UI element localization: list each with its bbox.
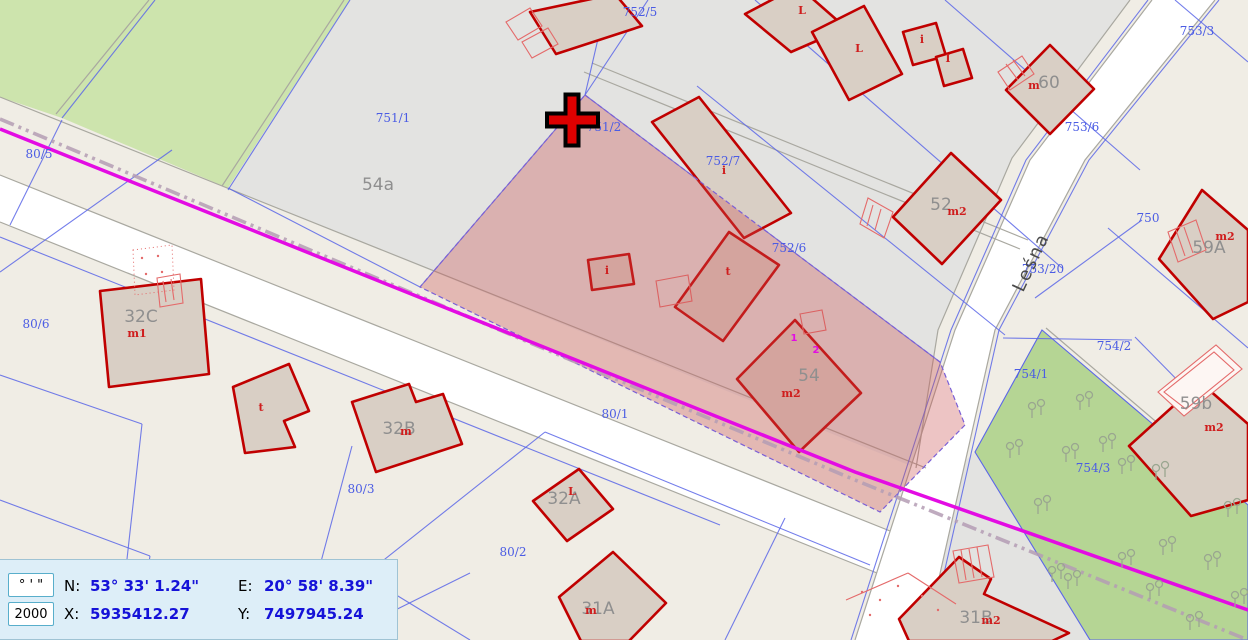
address-label: 59b bbox=[1180, 394, 1212, 414]
map-canvas[interactable]: 752/5751/1751/2752/6752/7753/3753/675075… bbox=[0, 0, 1248, 640]
address-label: 32A bbox=[547, 489, 581, 509]
utility-mark: 2 bbox=[813, 345, 820, 356]
building-type-mark: L bbox=[798, 4, 806, 17]
building-type-mark: i bbox=[920, 33, 924, 46]
building-type-mark: m2 bbox=[781, 387, 800, 400]
parcel-number-label: 80/1 bbox=[602, 407, 629, 421]
utility-mark: 1 bbox=[791, 333, 798, 344]
building-type-mark: m1 bbox=[127, 327, 146, 340]
building-type-mark: i bbox=[605, 264, 609, 277]
lon-label: E: bbox=[238, 577, 264, 595]
building-type-mark: L bbox=[855, 42, 863, 55]
building bbox=[100, 279, 209, 387]
x-label: X: bbox=[64, 605, 90, 623]
address-label: 32C bbox=[124, 307, 158, 327]
parcel-number-label: 753/6 bbox=[1065, 120, 1100, 134]
address-label: 60 bbox=[1038, 73, 1060, 93]
parcel-number-label: 750 bbox=[1137, 211, 1160, 225]
lat-label: N: bbox=[64, 577, 90, 595]
building-type-mark: m bbox=[1028, 79, 1040, 92]
address-label: 54 bbox=[798, 366, 820, 386]
scale-input[interactable]: 2000 bbox=[8, 602, 54, 626]
parcel-number-label: 80/5 bbox=[26, 147, 53, 161]
building-type-mark: m bbox=[400, 425, 412, 438]
parcel-number-label: 752/6 bbox=[772, 241, 807, 255]
building-type-mark: L bbox=[568, 485, 576, 498]
building-type-mark: m bbox=[585, 604, 597, 617]
parcel-number-label: 80/2 bbox=[500, 545, 527, 559]
lon-value: 20° 58' 8.39" bbox=[264, 577, 404, 595]
parcel-number-label: 754/1 bbox=[1014, 367, 1049, 381]
coordinate-panel: ° ' " 2000 N: 53° 33' 1.24" E: 20° 58' 8… bbox=[0, 559, 398, 640]
building-type-mark: i bbox=[722, 164, 726, 177]
y-label: Y: bbox=[238, 605, 264, 623]
parcel-number-label: 751/1 bbox=[376, 111, 411, 125]
parcel-number-label: 752/5 bbox=[623, 5, 658, 19]
y-value: 7497945.24 bbox=[264, 605, 404, 623]
x-value: 5935412.27 bbox=[90, 605, 238, 623]
parcel-number-label: 754/3 bbox=[1076, 461, 1111, 475]
map-viewer: 752/5751/1751/2752/6752/7753/3753/675075… bbox=[0, 0, 1248, 640]
lat-value: 53° 33' 1.24" bbox=[90, 577, 238, 595]
parcel-number-label: 80/6 bbox=[23, 317, 50, 331]
building-type-mark: m2 bbox=[981, 614, 1000, 627]
parcel-number-label: 754/2 bbox=[1097, 339, 1132, 353]
building-type-mark: I bbox=[945, 52, 950, 65]
parcel-number-label: 80/3 bbox=[348, 482, 375, 496]
units-format-button[interactable]: ° ' " bbox=[8, 573, 54, 597]
address-label: 54a bbox=[362, 175, 394, 195]
building-type-mark: m2 bbox=[947, 205, 966, 218]
building-type-mark: m2 bbox=[1204, 421, 1223, 434]
building-type-mark: m2 bbox=[1215, 230, 1234, 243]
parcel-number-label: 753/3 bbox=[1180, 24, 1215, 38]
